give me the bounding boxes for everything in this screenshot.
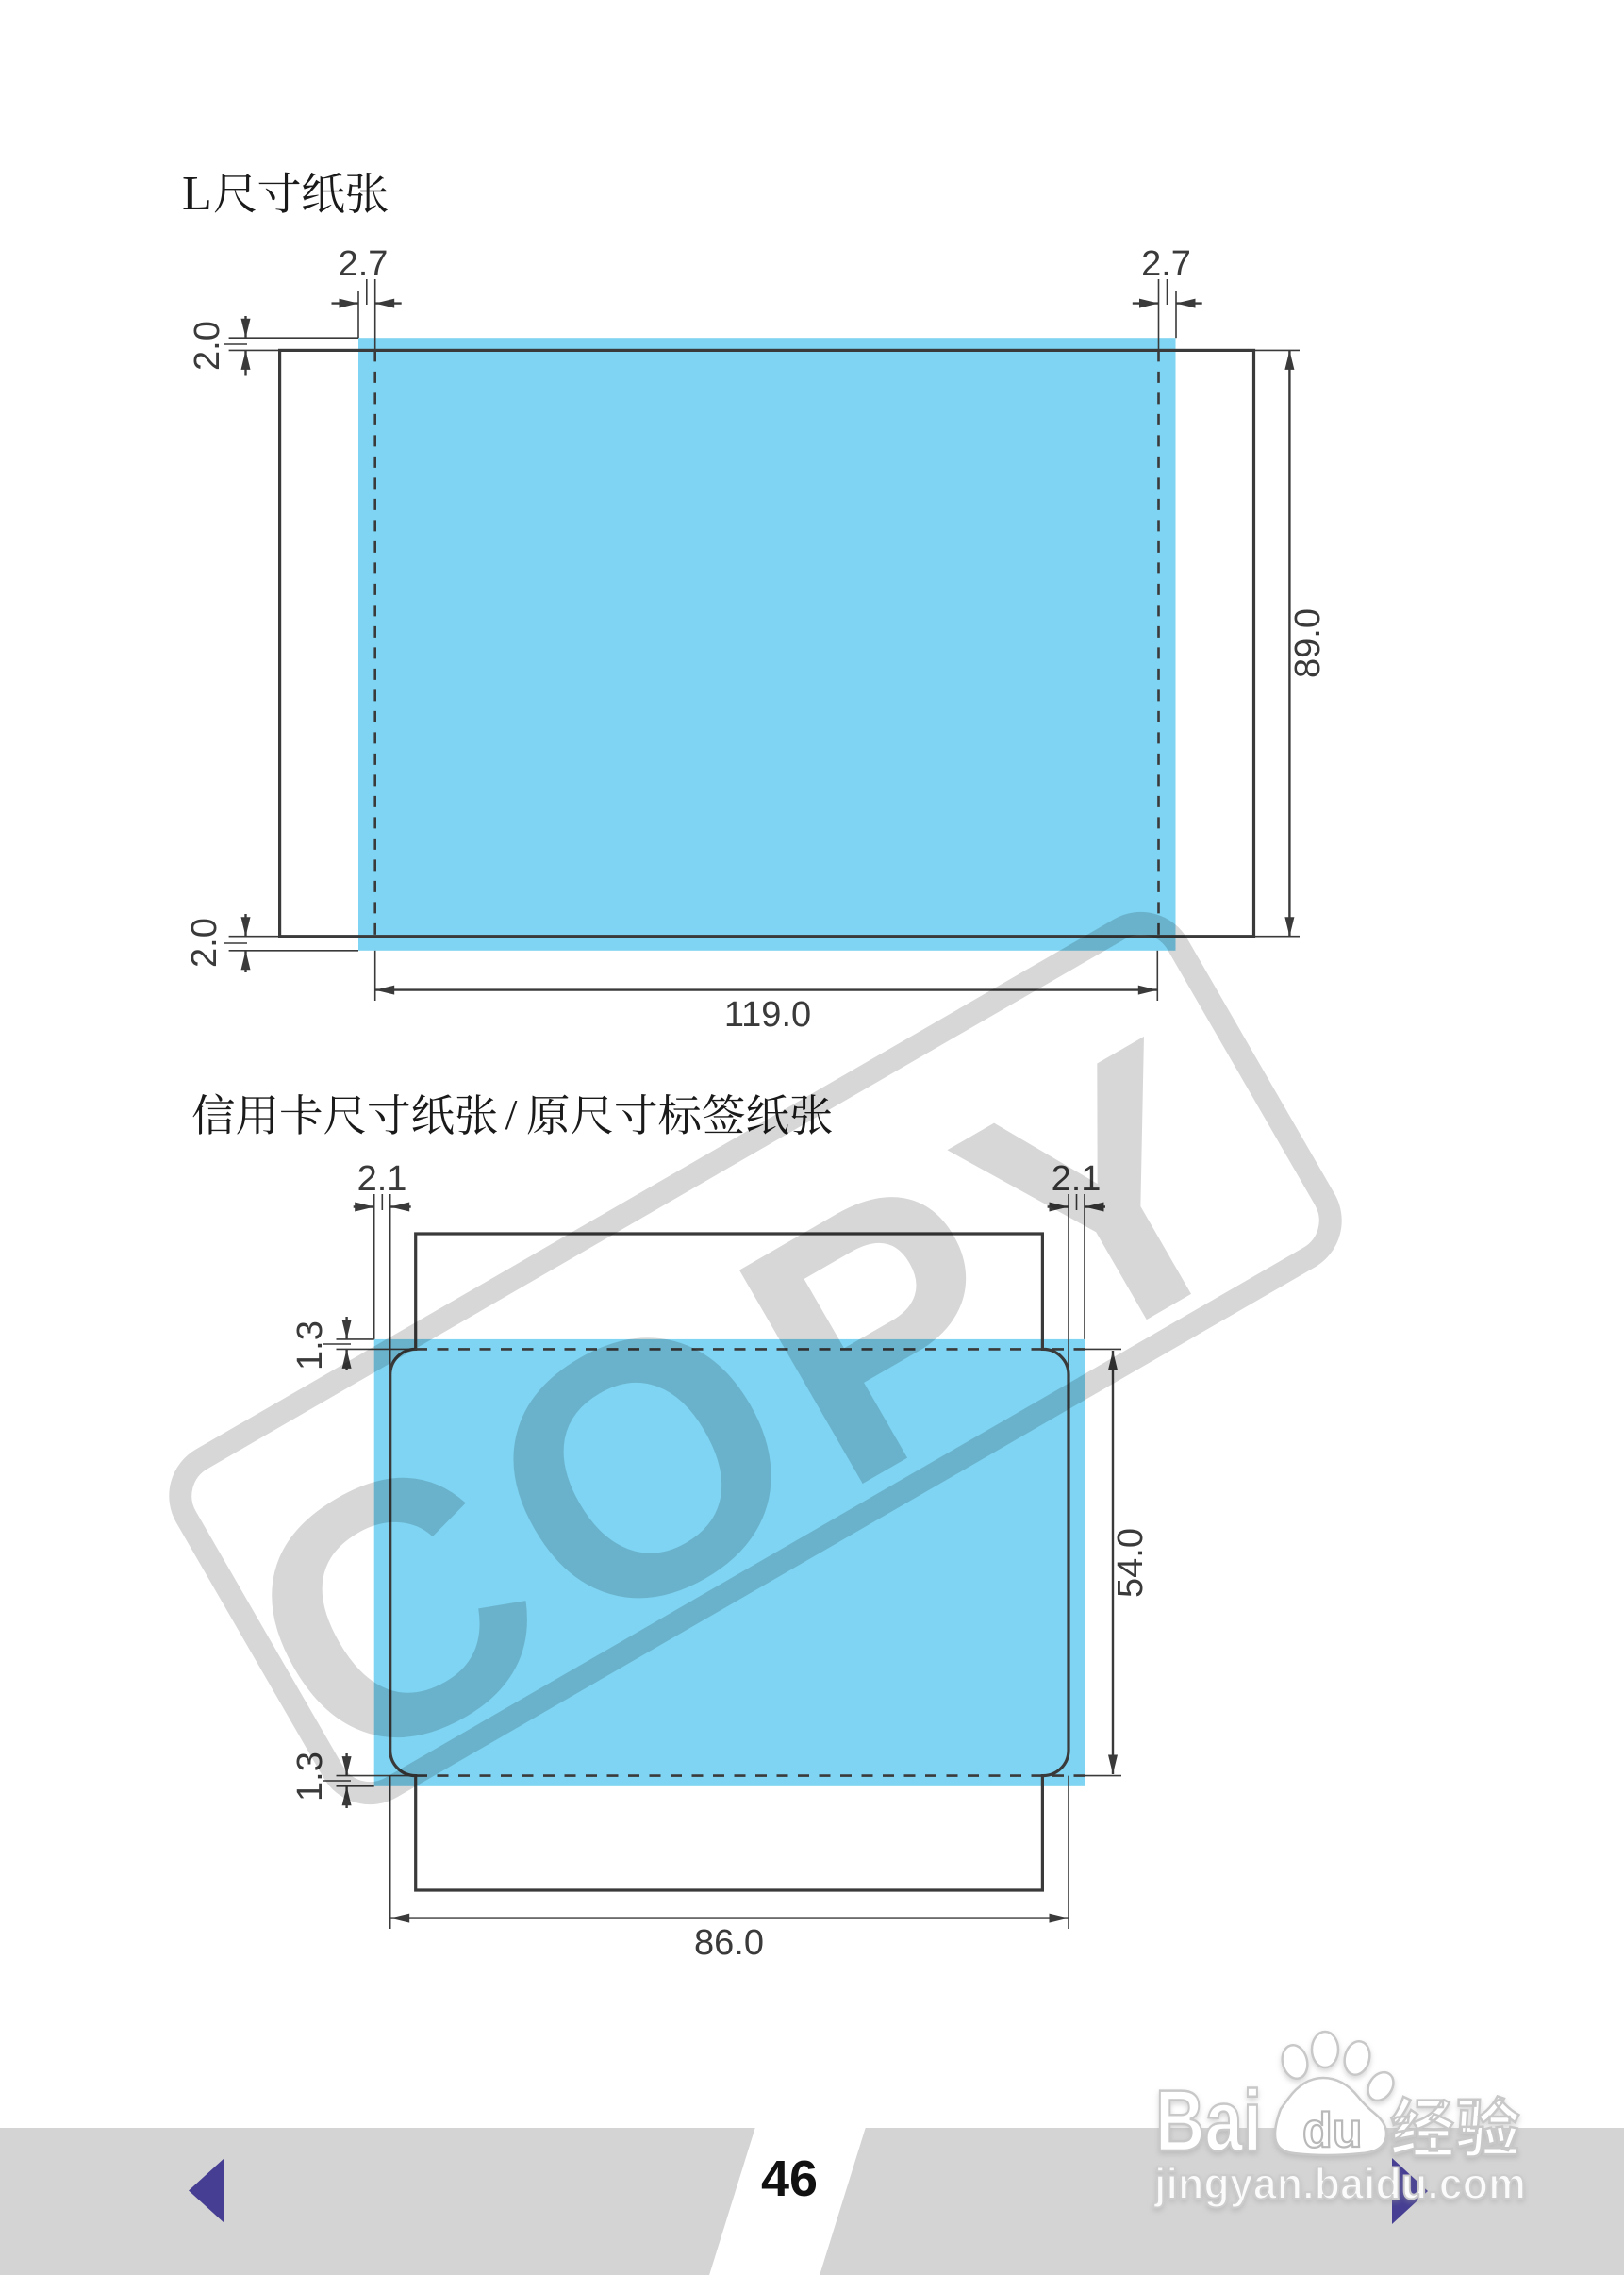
svg-text:Bai: Bai bbox=[1155, 2073, 1262, 2169]
svg-text:119.0: 119.0 bbox=[724, 995, 811, 1035]
svg-text:54.0: 54.0 bbox=[1111, 1528, 1151, 1598]
svg-text:2.7: 2.7 bbox=[339, 244, 389, 284]
svg-text:2.0: 2.0 bbox=[188, 321, 227, 371]
svg-text:1.3: 1.3 bbox=[290, 1320, 330, 1370]
svg-text:2.1: 2.1 bbox=[357, 1159, 407, 1199]
svg-text:2.0: 2.0 bbox=[185, 918, 224, 968]
svg-text:jingyan.baidu.com: jingyan.baidu.com bbox=[1153, 2159, 1526, 2208]
svg-text:46: 46 bbox=[761, 2150, 818, 2207]
svg-text:/: / bbox=[505, 1090, 518, 1138]
svg-text:89.0: 89.0 bbox=[1288, 608, 1328, 678]
svg-text:86.0: 86.0 bbox=[694, 1923, 764, 1963]
svg-text:L: L bbox=[182, 167, 212, 221]
svg-text:du: du bbox=[1302, 2103, 1363, 2158]
svg-text:2.7: 2.7 bbox=[1141, 244, 1191, 284]
